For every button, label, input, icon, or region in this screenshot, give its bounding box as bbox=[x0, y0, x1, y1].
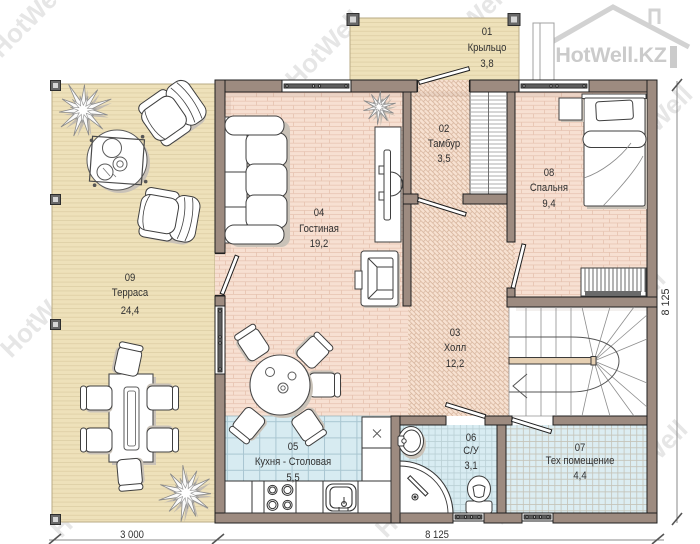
svg-text:HotWell.KZ: HotWell.KZ bbox=[555, 43, 666, 67]
svg-text:03: 03 bbox=[450, 328, 461, 340]
svg-text:3,8: 3,8 bbox=[480, 59, 494, 71]
svg-text:08: 08 bbox=[544, 168, 555, 180]
svg-text:05: 05 bbox=[288, 442, 299, 454]
svg-text:3,1: 3,1 bbox=[464, 461, 478, 473]
svg-text:Терраса: Терраса bbox=[112, 288, 149, 300]
svg-text:Тамбур: Тамбур bbox=[428, 137, 461, 150]
svg-text:01: 01 bbox=[482, 27, 493, 39]
svg-text:5,5: 5,5 bbox=[286, 473, 300, 485]
svg-text:Спальня: Спальня bbox=[530, 183, 568, 195]
svg-text:Крыльцо: Крыльцо bbox=[468, 43, 507, 55]
svg-text:19,2: 19,2 bbox=[310, 239, 329, 251]
svg-text:07: 07 bbox=[575, 443, 586, 455]
svg-text:3 000: 3 000 bbox=[120, 530, 144, 542]
svg-text:8 125: 8 125 bbox=[425, 530, 449, 542]
svg-text:Тех помещение: Тех помещение bbox=[546, 456, 615, 468]
svg-text:Холл: Холл bbox=[444, 343, 466, 355]
svg-text:Гостиная: Гостиная bbox=[299, 224, 339, 236]
svg-text:4,4: 4,4 bbox=[573, 471, 587, 483]
svg-text:9,4: 9,4 bbox=[542, 199, 556, 211]
svg-text:С/У: С/У bbox=[463, 446, 479, 458]
svg-text:Кухня - Столовая: Кухня - Столовая bbox=[255, 457, 331, 469]
svg-text:8 125: 8 125 bbox=[660, 288, 672, 315]
svg-text:3,5: 3,5 bbox=[437, 154, 451, 166]
svg-text:02: 02 bbox=[439, 124, 450, 136]
svg-text:24,4: 24,4 bbox=[121, 306, 140, 318]
svg-text:12,2: 12,2 bbox=[446, 359, 465, 371]
svg-text:06: 06 bbox=[466, 433, 477, 445]
svg-text:09: 09 bbox=[125, 273, 136, 285]
svg-text:04: 04 bbox=[314, 208, 325, 220]
